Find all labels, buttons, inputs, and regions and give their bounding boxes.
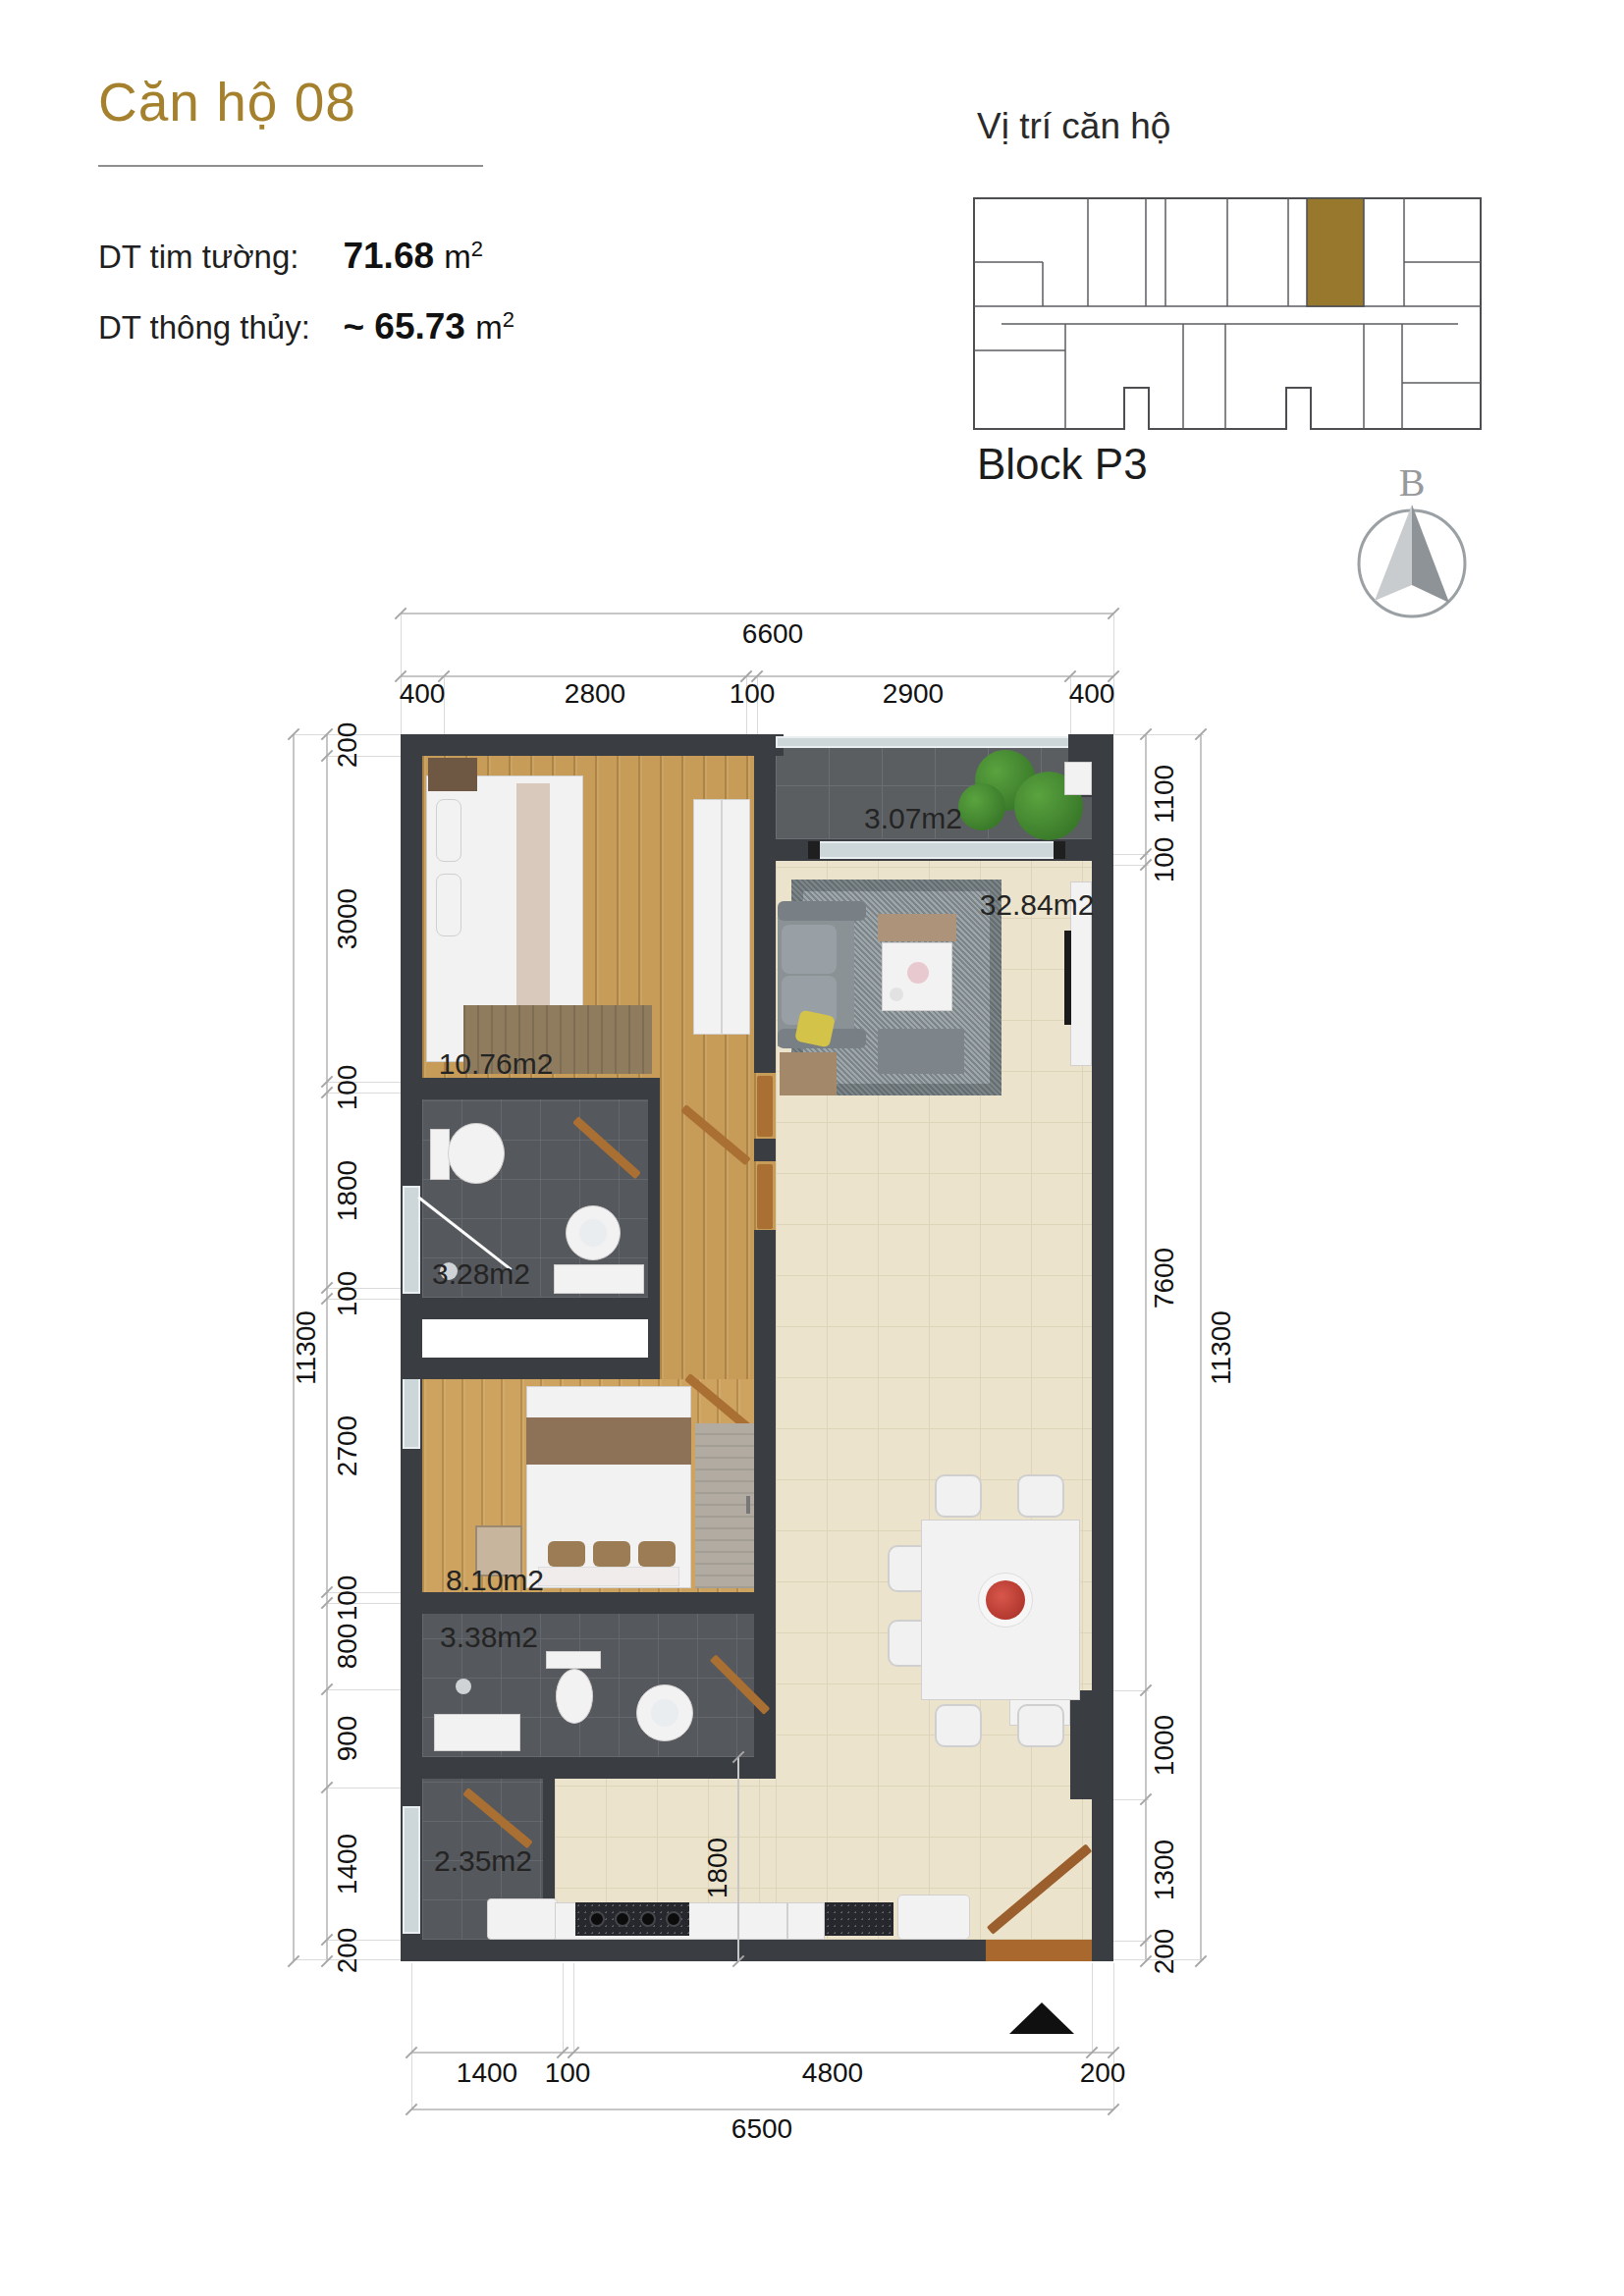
compass-icon (1351, 499, 1473, 620)
dim-label: 900 (332, 1716, 363, 1762)
bedroom1-pillow-2 (436, 874, 461, 936)
area-row-1-unit: m (444, 239, 471, 275)
block-diagram (972, 187, 1485, 432)
area-row-2-sup: 2 (503, 307, 514, 332)
area-row-1-sup: 2 (471, 237, 483, 261)
wall-right-step (1070, 1690, 1092, 1799)
dim-label: 1400 (457, 2057, 517, 2089)
kitchen-counter-dark (825, 1902, 893, 1936)
area-row-2-value: ~ 65.73 (343, 306, 464, 347)
dim-label: 100 (545, 2057, 591, 2089)
dim-label: 7600 (1149, 1248, 1180, 1308)
dim-line (411, 2052, 1113, 2054)
dim-extension (411, 1963, 412, 2109)
block-label: Block P3 (977, 440, 1148, 489)
room-label-loggia-bottom: 2.35m2 (434, 1844, 532, 1878)
dim-label: 1800 (332, 1160, 363, 1221)
dim-extension (573, 1963, 574, 2052)
dim-label: 100 (1149, 837, 1180, 883)
bedroom1-pillow-1 (436, 799, 461, 862)
burner-1 (589, 1911, 605, 1927)
dim-label: 4800 (802, 2057, 863, 2089)
dim-label: 1300 (1149, 1840, 1180, 1900)
dim-label: 100 (332, 1575, 363, 1622)
dim-label: 100 (730, 678, 776, 710)
burner-3 (640, 1911, 656, 1927)
block-internal-lines (974, 198, 1481, 429)
entrance-threshold (986, 1940, 1092, 1961)
wc2-toilet-bowl (556, 1669, 593, 1724)
dim-label: 400 (1069, 678, 1115, 710)
dim-label: 200 (1149, 1929, 1180, 1975)
wall-right (1092, 734, 1113, 1961)
door-track-mark-right (1054, 841, 1065, 859)
bedroom2-wardrobe-handle (746, 1496, 750, 1514)
balcony-sliding-door (808, 841, 1065, 859)
dim-extension (1113, 734, 1204, 735)
wood-tray-table (878, 914, 956, 941)
dining-flowers (986, 1580, 1025, 1620)
highlighted-unit (1307, 198, 1364, 306)
area-row-1: DT tim tường: 71.68 m2 (98, 236, 483, 277)
wc2-vanity (434, 1714, 520, 1751)
dim-label: 11300 (1206, 1310, 1237, 1385)
wc1-toilet-bowl (448, 1123, 505, 1184)
dim-line (1145, 734, 1147, 1961)
dim-label: 200 (1080, 2057, 1126, 2089)
dim-line (411, 2109, 1113, 2110)
dim-label: 11300 (291, 1310, 322, 1385)
entrance-arrow-icon (1009, 2002, 1074, 2034)
floor-plan: 3.07m2 32.84m2 10.76m2 3.28m2 8.10m2 3.3… (401, 734, 1113, 1961)
room-label-living: 32.84m2 (980, 888, 1095, 922)
bedroom1-wardrobe-line (721, 799, 723, 1035)
room-label-wc2: 3.38m2 (440, 1621, 538, 1654)
coffee-table-flowers (907, 962, 929, 984)
wall-top (401, 734, 784, 756)
door-leaf-opening-2 (757, 1164, 773, 1229)
side-table (780, 1052, 837, 1095)
dim-extension (563, 1963, 564, 2052)
wall-bedroom2-top (401, 1358, 660, 1379)
wall-main-vertical (754, 756, 776, 1779)
sofa-cushion-1 (782, 925, 837, 974)
dim-label: 1000 (1149, 1715, 1180, 1776)
dim-label: 200 (332, 1928, 363, 1974)
wc1-toilet-tank (430, 1129, 450, 1180)
dim-line (737, 1757, 739, 1961)
fridge (897, 1895, 970, 1940)
balcony-railing-glass (776, 736, 1092, 748)
dim-extension (1092, 1963, 1093, 2052)
kitchen-oven (787, 1902, 825, 1940)
wall-wc1-right (648, 1078, 660, 1379)
dim-label: 800 (332, 1624, 363, 1670)
dim-label: 2800 (565, 678, 625, 710)
dim-label: 1100 (1149, 765, 1180, 824)
title-divider (98, 165, 483, 167)
bedroom2-cushion-1 (548, 1541, 585, 1567)
sofa-armrest-top (778, 901, 866, 921)
dim-label: 1800 (702, 1838, 733, 1898)
location-title: Vị trí căn hộ (977, 106, 1170, 147)
dim-extension (328, 1788, 401, 1789)
area-row-2-unit: m (475, 309, 503, 346)
dim-label: 2700 (332, 1415, 363, 1476)
dining-chair (935, 1704, 982, 1747)
dim-label: 6600 (742, 618, 803, 650)
bedroom2-bed-runner (526, 1417, 691, 1465)
room-label-bedroom2: 8.10m2 (446, 1564, 544, 1597)
room-label-loggia-top: 3.07m2 (864, 802, 962, 835)
area-row-1-label: DT tim tường: (98, 239, 339, 276)
bedroom2-cushion-3 (638, 1541, 676, 1567)
room-label-bedroom1: 10.76m2 (439, 1047, 554, 1081)
dim-line (326, 734, 328, 1961)
dining-chair (1017, 1704, 1064, 1747)
dim-label: 1400 (332, 1834, 363, 1895)
dim-label: 100 (332, 1065, 363, 1111)
area-row-2-label: DT thông thủy: (98, 309, 339, 347)
window-wc1 (403, 1186, 420, 1294)
burner-4 (666, 1911, 681, 1927)
dim-label: 200 (332, 722, 363, 769)
window-loggia (403, 1806, 420, 1934)
ottoman (878, 1029, 964, 1074)
wc2-shower-head (456, 1679, 471, 1694)
door-track-mark-left (808, 841, 820, 859)
window-bedroom2 (403, 1372, 420, 1449)
dim-label: 100 (332, 1271, 363, 1317)
area-row-1-value: 71.68 (343, 236, 434, 276)
wall-wc1-bottom (401, 1298, 660, 1319)
coffee-table-plate (890, 988, 903, 1001)
washing-machine (487, 1898, 558, 1940)
dim-line (1200, 734, 1202, 1961)
wc1-vanity (554, 1264, 644, 1294)
burner-2 (615, 1911, 630, 1927)
dim-label: 6500 (731, 2113, 792, 2145)
page-title: Căn hộ 08 (98, 71, 356, 133)
wc2-toilet-tank (546, 1651, 601, 1669)
wall-wc2-bottom (401, 1757, 776, 1779)
bedroom2-cushion-2 (593, 1541, 630, 1567)
dining-chair (1017, 1474, 1064, 1518)
dim-label: 400 (400, 678, 446, 710)
dim-line (401, 613, 1113, 614)
bedroom2-pillows (538, 1567, 679, 1586)
dim-label: 3000 (332, 888, 363, 949)
tv-icon (1064, 931, 1071, 1025)
dim-label: 2900 (883, 678, 944, 710)
bedroom2-wardrobe (695, 1423, 754, 1588)
wc1-sink-basin (579, 1219, 607, 1247)
balcony-shelf (1064, 762, 1092, 795)
plant-icon (958, 783, 1005, 830)
bedroom1-dresser (428, 758, 477, 791)
dining-chair (935, 1474, 982, 1518)
wall-bedroom1-bottom (401, 1078, 660, 1099)
floorplan-sheet: Căn hộ 08 DT tim tường: 71.68 m2 DT thôn… (0, 0, 1624, 2296)
door-leaf-opening-1 (757, 1076, 773, 1137)
room-label-wc1: 3.28m2 (432, 1257, 530, 1291)
dim-extension (328, 1689, 401, 1690)
wc2-sink-basin (651, 1699, 678, 1727)
area-row-2: DT thông thủy: ~ 65.73 m2 (98, 306, 514, 347)
